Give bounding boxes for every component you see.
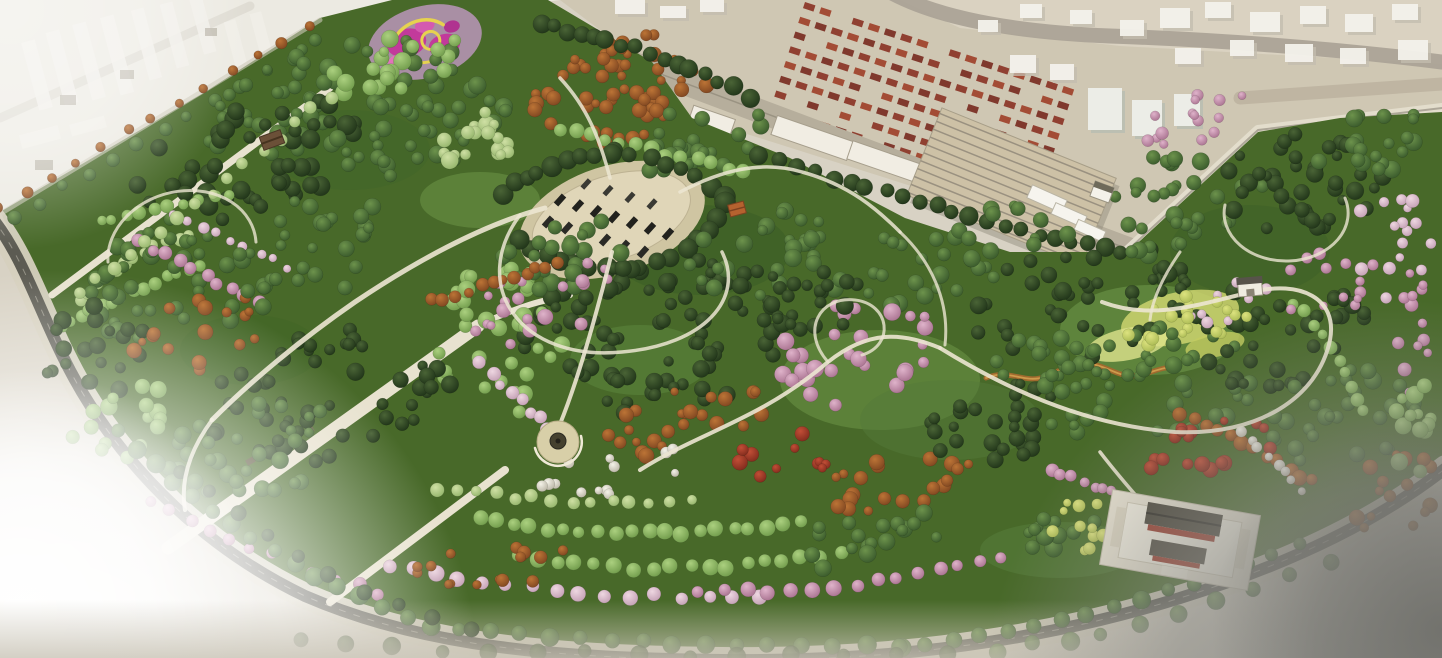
east-pavilion — [1236, 276, 1264, 297]
rendering-canvas — [0, 0, 1442, 658]
park-aerial-master-plan — [0, 0, 1442, 658]
